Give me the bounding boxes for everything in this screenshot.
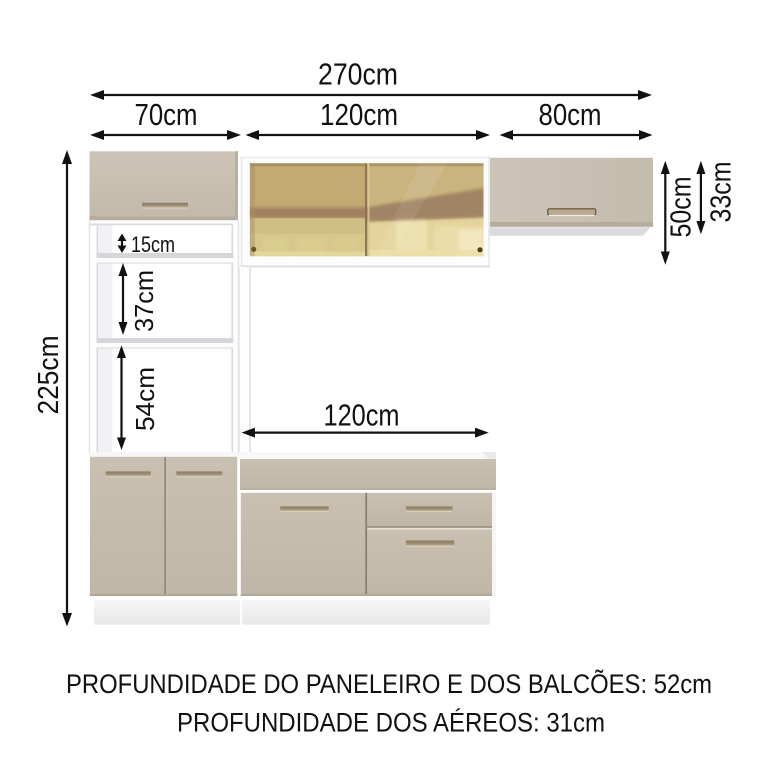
svg-text:80cm: 80cm (539, 97, 602, 132)
svg-text:50cm: 50cm (666, 177, 698, 238)
svg-text:270cm: 270cm (318, 57, 398, 92)
svg-text:PROFUNDIDADE DOS AÉREOS: 31cm: PROFUNDIDADE DOS AÉREOS: 31cm (177, 708, 605, 738)
svg-text:225cm: 225cm (33, 336, 65, 415)
svg-text:120cm: 120cm (324, 398, 400, 433)
svg-text:120cm: 120cm (320, 97, 398, 132)
svg-text:37cm: 37cm (129, 270, 159, 332)
svg-text:54cm: 54cm (130, 367, 160, 431)
svg-text:70cm: 70cm (135, 97, 198, 132)
svg-text:33cm: 33cm (706, 162, 738, 223)
svg-text:PROFUNDIDADE DO PANELEIRO E DO: PROFUNDIDADE DO PANELEIRO E DOS BALCÕES:… (66, 668, 712, 699)
svg-text:15cm: 15cm (131, 232, 175, 257)
